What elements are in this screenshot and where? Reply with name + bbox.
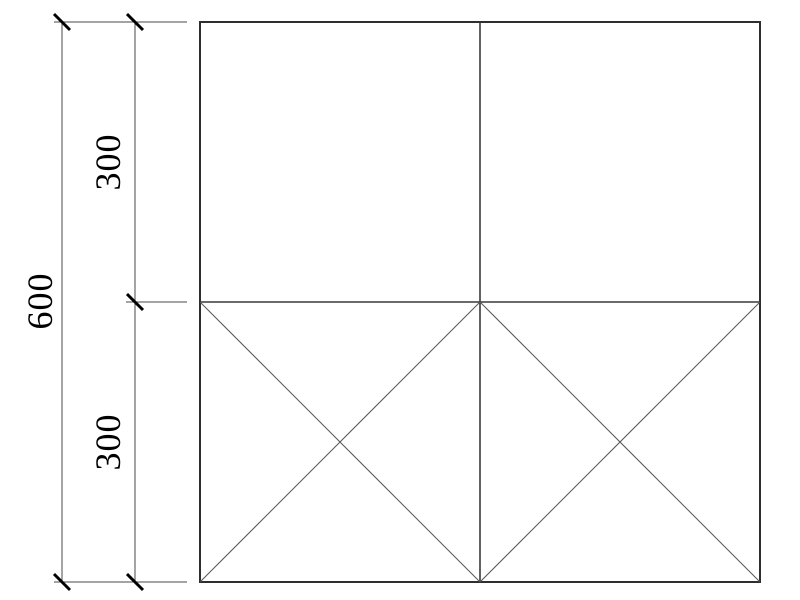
dimension-label-upper-segment: 300 <box>88 134 128 191</box>
dimension-label-overall: 600 <box>20 273 60 330</box>
dimension-labels: 600 300 300 <box>20 134 128 471</box>
technical-drawing: 600 300 300 <box>0 0 800 600</box>
cross-brace-bottom-right <box>480 302 760 582</box>
drawing-canvas: 600 300 300 <box>0 0 800 600</box>
extension-lines <box>54 22 187 582</box>
dimension-lines <box>62 22 135 582</box>
dimension-label-lower-segment: 300 <box>88 414 128 471</box>
cross-brace-bottom-left <box>200 302 480 582</box>
